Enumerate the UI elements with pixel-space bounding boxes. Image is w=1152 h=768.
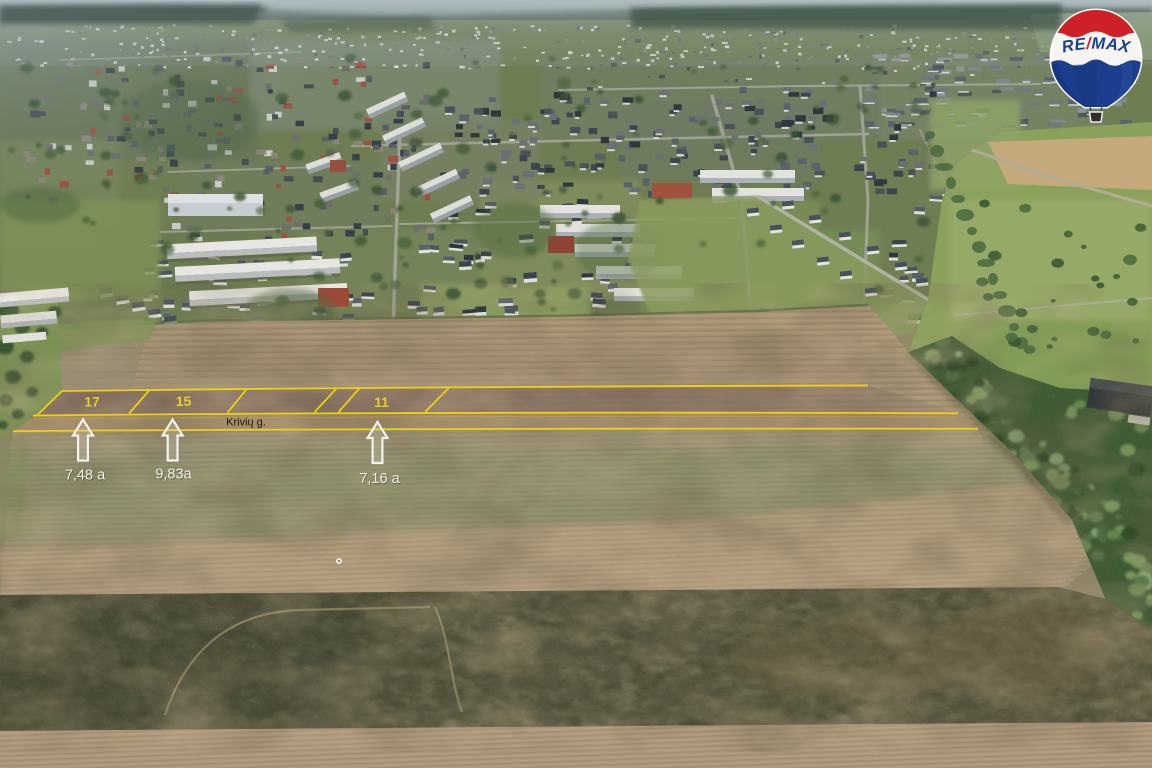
svg-text:9,83a: 9,83a	[155, 467, 192, 483]
svg-text:7,48 a: 7,48 a	[65, 468, 106, 484]
svg-text:15: 15	[176, 393, 192, 409]
svg-text:Krivių g.: Krivių g.	[226, 417, 266, 429]
svg-text:11: 11	[374, 394, 389, 410]
svg-text:17: 17	[84, 394, 100, 410]
svg-text:7,16 a: 7,16 a	[359, 471, 400, 487]
